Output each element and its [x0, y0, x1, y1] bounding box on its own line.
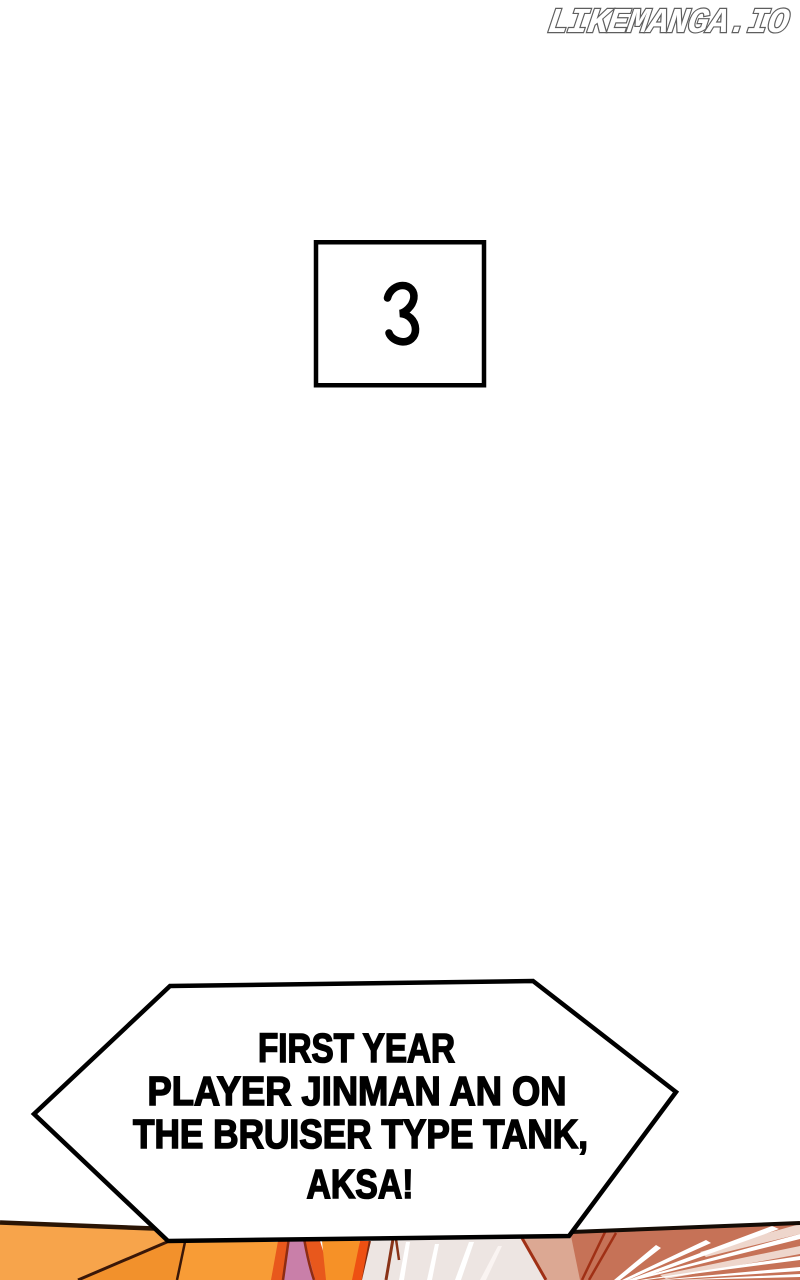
svg-text:THE BRUISER TYPE TANK,: THE BRUISER TYPE TANK,: [133, 1111, 588, 1157]
svg-text:LIKEMANGA.IO: LIKEMANGA.IO: [545, 3, 791, 43]
svg-text:AKSA!: AKSA!: [307, 1161, 414, 1207]
svg-text:PLAYER JINMAN AN ON: PLAYER JINMAN AN ON: [148, 1068, 567, 1114]
svg-text:FIRST YEAR: FIRST YEAR: [258, 1025, 455, 1071]
